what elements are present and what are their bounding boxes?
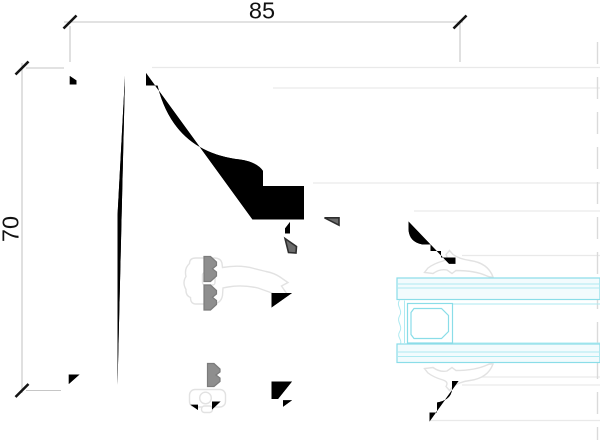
profile-drawing: 85 70: [0, 0, 600, 440]
dimension-label-height: 70: [0, 216, 24, 242]
glazing-unit: [397, 278, 600, 363]
frame-profile: [66, 73, 304, 387]
bottom-seal-gasket: [190, 390, 226, 413]
gaskets: [184, 251, 493, 413]
sash-bar-tip: [325, 218, 340, 225]
technical-drawing-canvas: 85 70: [0, 0, 600, 440]
glass-pane-bottom: [397, 344, 600, 363]
dimension-width: 85: [64, 0, 467, 62]
edge-sealant: [398, 300, 404, 344]
sash-profile: [190, 218, 459, 422]
frame-clip-lower: [208, 364, 221, 387]
glazing-gasket-bottom: [425, 364, 494, 391]
sash-corner-spike: [285, 239, 297, 254]
dimension-height: 70: [0, 62, 64, 398]
glass-pane-top: [397, 278, 600, 300]
spacer-bar: [408, 304, 453, 344]
glazing-gasket-top: [425, 251, 494, 278]
dimension-label-width: 85: [249, 0, 275, 24]
